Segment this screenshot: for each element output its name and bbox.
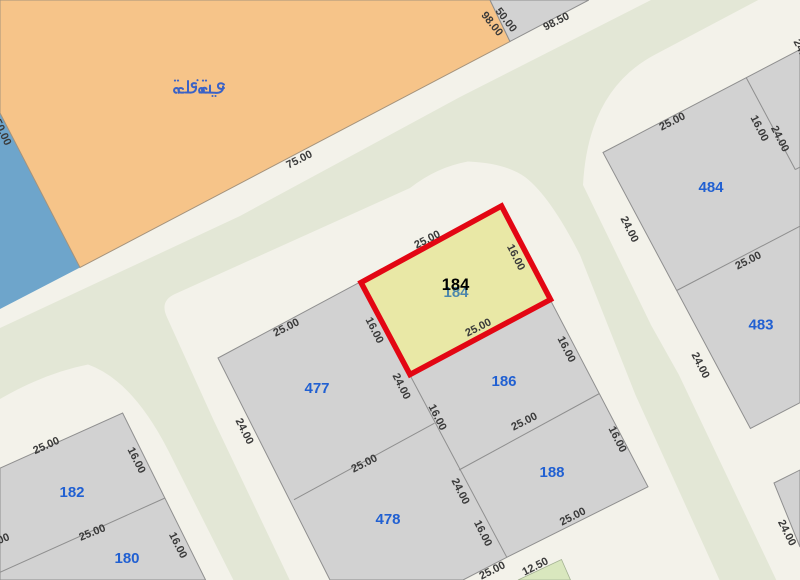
- svg-text:483: 483: [748, 317, 773, 334]
- svg-text:186: 186: [491, 373, 516, 390]
- svg-text:484: 484: [698, 179, 724, 196]
- svg-text:182: 182: [59, 484, 84, 501]
- svg-text:184: 184: [442, 276, 470, 294]
- svg-text:477: 477: [304, 380, 329, 397]
- svg-text:180: 180: [114, 550, 139, 567]
- svg-text:478: 478: [375, 511, 400, 528]
- svg-text:188: 188: [539, 464, 564, 481]
